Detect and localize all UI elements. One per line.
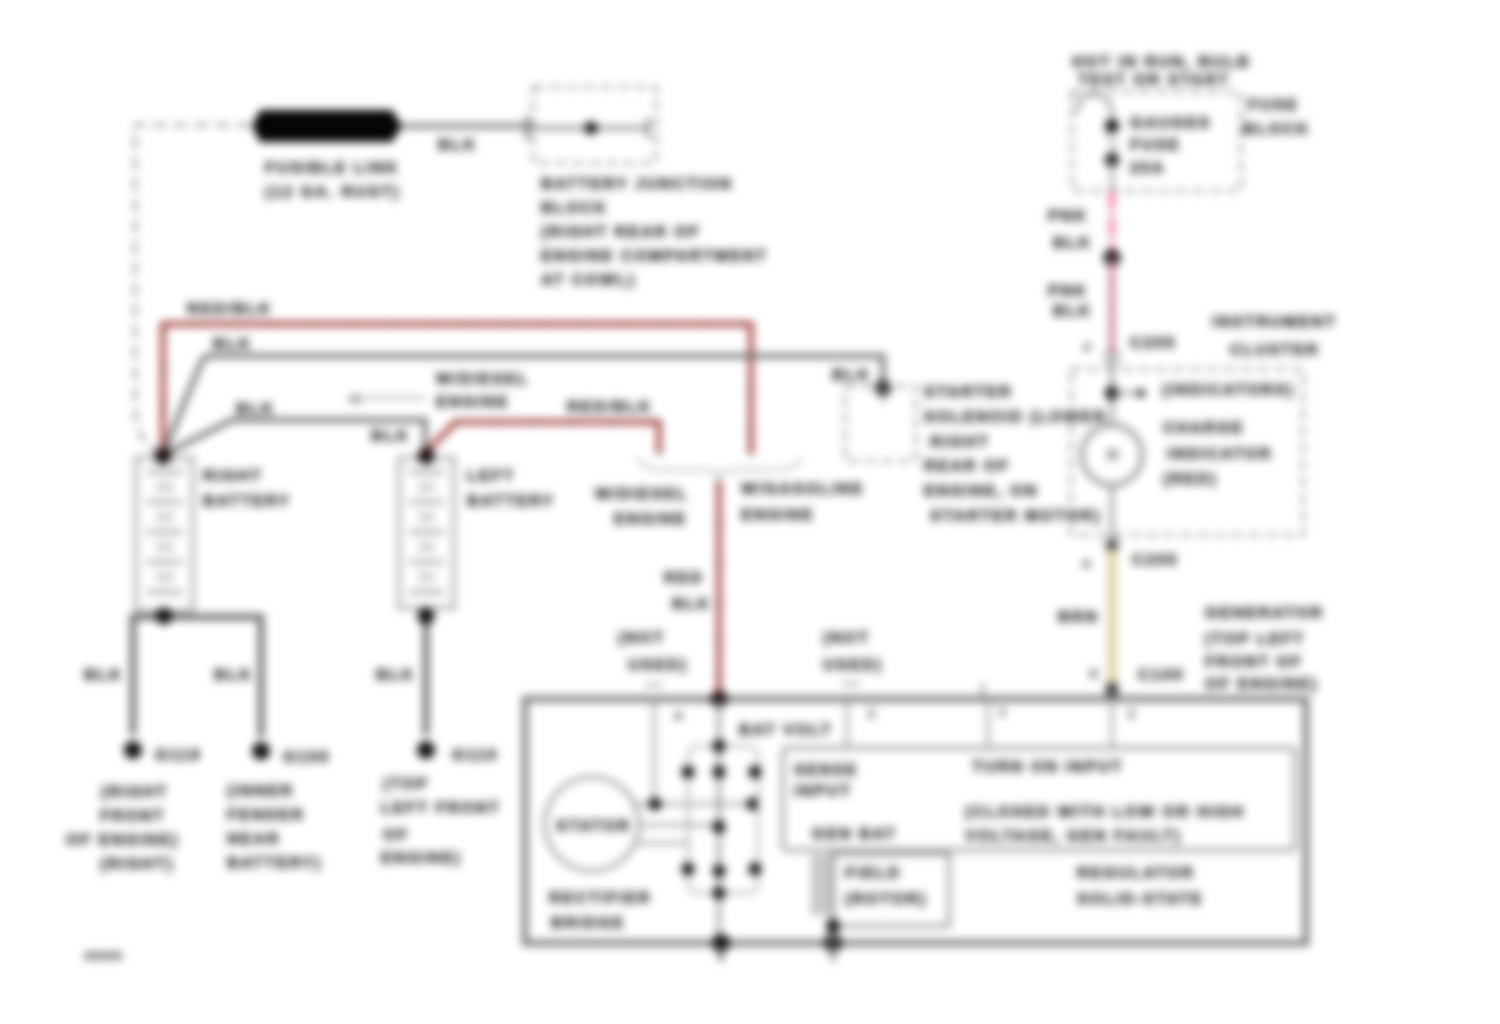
svg-text:C205: C205	[1132, 552, 1178, 569]
svg-text:ENGINE: ENGINE	[436, 394, 509, 411]
svg-text:HOT IN RUN, BULB: HOT IN RUN, BULB	[1072, 54, 1251, 71]
svg-text:W/DIESEL: W/DIESEL	[436, 371, 529, 388]
svg-text:(RIGHT): (RIGHT)	[100, 856, 174, 873]
svg-text:RIGHT: RIGHT	[203, 468, 263, 485]
svg-text:BLK: BLK	[371, 428, 410, 445]
svg-text:FENDER: FENDER	[227, 807, 305, 824]
svg-text:CLUSTER: CLUSTER	[1230, 342, 1320, 359]
svg-text:BLOCK: BLOCK	[541, 200, 608, 217]
svg-text:OF ENGINE): OF ENGINE)	[66, 832, 179, 849]
svg-text:(INNER: (INNER	[227, 783, 294, 800]
svg-text:BLK: BLK	[84, 667, 123, 684]
svg-text:G100: G100	[283, 749, 330, 766]
svg-text:REAR OF: REAR OF	[924, 458, 1010, 475]
svg-text:ENGINE COMPARTMENT: ENGINE COMPARTMENT	[541, 248, 768, 265]
svg-text:FUSE: FUSE	[1248, 97, 1299, 114]
svg-text:20A: 20A	[1130, 160, 1165, 177]
svg-text:1: 1	[999, 705, 1007, 719]
svg-text:STARTER: STARTER	[924, 384, 1012, 401]
svg-text:F: F	[1084, 341, 1092, 355]
svg-text:GEN BAT: GEN BAT	[812, 826, 897, 843]
svg-text:A: A	[1082, 557, 1092, 571]
svg-text:OF: OF	[383, 827, 409, 844]
svg-text:BRIDGE: BRIDGE	[551, 915, 625, 932]
svg-text:RED/BLK: RED/BLK	[187, 301, 272, 318]
svg-text:TURN ON INPUT: TURN ON INPUT	[972, 759, 1123, 776]
svg-text:BRN: BRN	[1058, 609, 1099, 626]
svg-text:BLOCK: BLOCK	[1243, 121, 1310, 138]
svg-text:USED): USED)	[628, 657, 688, 674]
svg-text:BLK: BLK	[672, 596, 711, 613]
svg-text:FUSIBLE LINK: FUSIBLE LINK	[265, 160, 399, 177]
svg-text:CHARGE: CHARGE	[1163, 420, 1244, 437]
svg-text:W/GASOLINE: W/GASOLINE	[741, 481, 864, 498]
svg-text:(ROTOR): (ROTOR)	[845, 891, 927, 908]
svg-text:W/DIESEL: W/DIESEL	[595, 486, 688, 503]
svg-text:VOLTAGE, GEN FAULT): VOLTAGE, GEN FAULT)	[965, 828, 1182, 845]
svg-text:BLK: BLK	[1053, 303, 1092, 320]
svg-text:BAT VOLT: BAT VOLT	[739, 722, 833, 739]
svg-text:(TOP: (TOP	[383, 776, 429, 793]
svg-text:TEST OR START: TEST OR START	[1078, 72, 1230, 89]
svg-text:INPUT: INPUT	[794, 783, 852, 800]
svg-text:ENGINE: ENGINE	[741, 507, 814, 524]
svg-text:C205: C205	[1130, 335, 1176, 352]
svg-text:(RED): (RED)	[1163, 471, 1217, 488]
svg-text:(RIGHT REAR OF: (RIGHT REAR OF	[541, 224, 701, 241]
svg-text:BLK: BLK	[213, 336, 252, 353]
svg-text:(12 GA. RUST): (12 GA. RUST)	[265, 184, 400, 201]
svg-text:GENERATOR: GENERATOR	[1205, 605, 1324, 622]
svg-text:FRONT: FRONT	[100, 808, 165, 825]
svg-text:BLK: BLK	[438, 137, 477, 154]
svg-text:LEFT: LEFT	[467, 468, 515, 485]
svg-text:(INDICATORS): (INDICATORS)	[1162, 382, 1295, 399]
svg-text:FUSE: FUSE	[1130, 137, 1181, 154]
svg-text:(RIGHT: (RIGHT	[101, 784, 168, 801]
svg-text:C100: C100	[1138, 667, 1184, 684]
svg-text:45008: 45008	[84, 949, 122, 963]
svg-text:ENGINE): ENGINE)	[381, 850, 462, 867]
svg-text:BLK: BLK	[376, 667, 415, 684]
svg-text:LEFT FRONT: LEFT FRONT	[381, 800, 501, 817]
svg-text:STARTER MOTOR): STARTER MOTOR)	[930, 508, 1101, 525]
svg-text:G119: G119	[155, 747, 201, 764]
svg-text:BLK: BLK	[236, 401, 275, 418]
svg-text:BLK: BLK	[832, 367, 871, 384]
svg-text:SENSE: SENSE	[794, 762, 858, 779]
svg-text:RED: RED	[664, 570, 704, 587]
svg-text:FRONT OF: FRONT OF	[1205, 654, 1303, 671]
svg-text:2: 2	[868, 707, 876, 721]
svg-text:2: 2	[1128, 707, 1136, 721]
svg-text:PNK: PNK	[1048, 283, 1088, 300]
svg-text:BATTERY: BATTERY	[203, 493, 291, 510]
svg-text:INDICATOR: INDICATOR	[1167, 446, 1272, 463]
svg-text:FIELD: FIELD	[845, 865, 901, 882]
svg-text:BATTERY): BATTERY)	[227, 855, 322, 872]
svg-text:RED/BLK: RED/BLK	[567, 399, 652, 416]
svg-text:REGULATOR: REGULATOR	[1077, 865, 1195, 882]
svg-text:RECTIFIER: RECTIFIER	[549, 890, 651, 907]
svg-text:AT COWL): AT COWL)	[541, 272, 636, 289]
svg-text:RIGHT: RIGHT	[930, 434, 990, 451]
svg-text:SOLENOID (LOWER: SOLENOID (LOWER	[924, 409, 1107, 426]
svg-text:G110: G110	[452, 747, 498, 764]
svg-text:(CLOSED WITH LOW OR HIGH: (CLOSED WITH LOW OR HIGH	[965, 804, 1245, 821]
svg-text:(NOT: (NOT	[823, 630, 870, 647]
svg-text:(TOP LEFT: (TOP LEFT	[1205, 631, 1305, 648]
svg-text:ENGINE, ON: ENGINE, ON	[924, 483, 1038, 500]
svg-text:BATTERY JUNCTION: BATTERY JUNCTION	[541, 176, 733, 193]
svg-text:BLK: BLK	[1053, 235, 1092, 252]
svg-text:PNK: PNK	[1048, 208, 1088, 225]
svg-text:BLK: BLK	[214, 667, 253, 684]
svg-text:INSTRUMENT: INSTRUMENT	[1212, 314, 1337, 331]
svg-text:(NOT: (NOT	[618, 630, 665, 647]
svg-text:P: P	[675, 710, 684, 724]
svg-text:OF ENGINE): OF ENGINE)	[1205, 676, 1318, 693]
svg-text:SOLID-STATE: SOLID-STATE	[1077, 891, 1203, 908]
svg-text:STATOR: STATOR	[556, 818, 631, 835]
svg-text:NEAR: NEAR	[227, 831, 280, 848]
svg-text:ENGINE: ENGINE	[614, 511, 687, 528]
svg-text:E: E	[1090, 667, 1099, 681]
svg-text:GAUGES: GAUGES	[1130, 115, 1211, 132]
svg-text:BATTERY: BATTERY	[467, 493, 555, 510]
svg-text:USED): USED)	[823, 657, 883, 674]
